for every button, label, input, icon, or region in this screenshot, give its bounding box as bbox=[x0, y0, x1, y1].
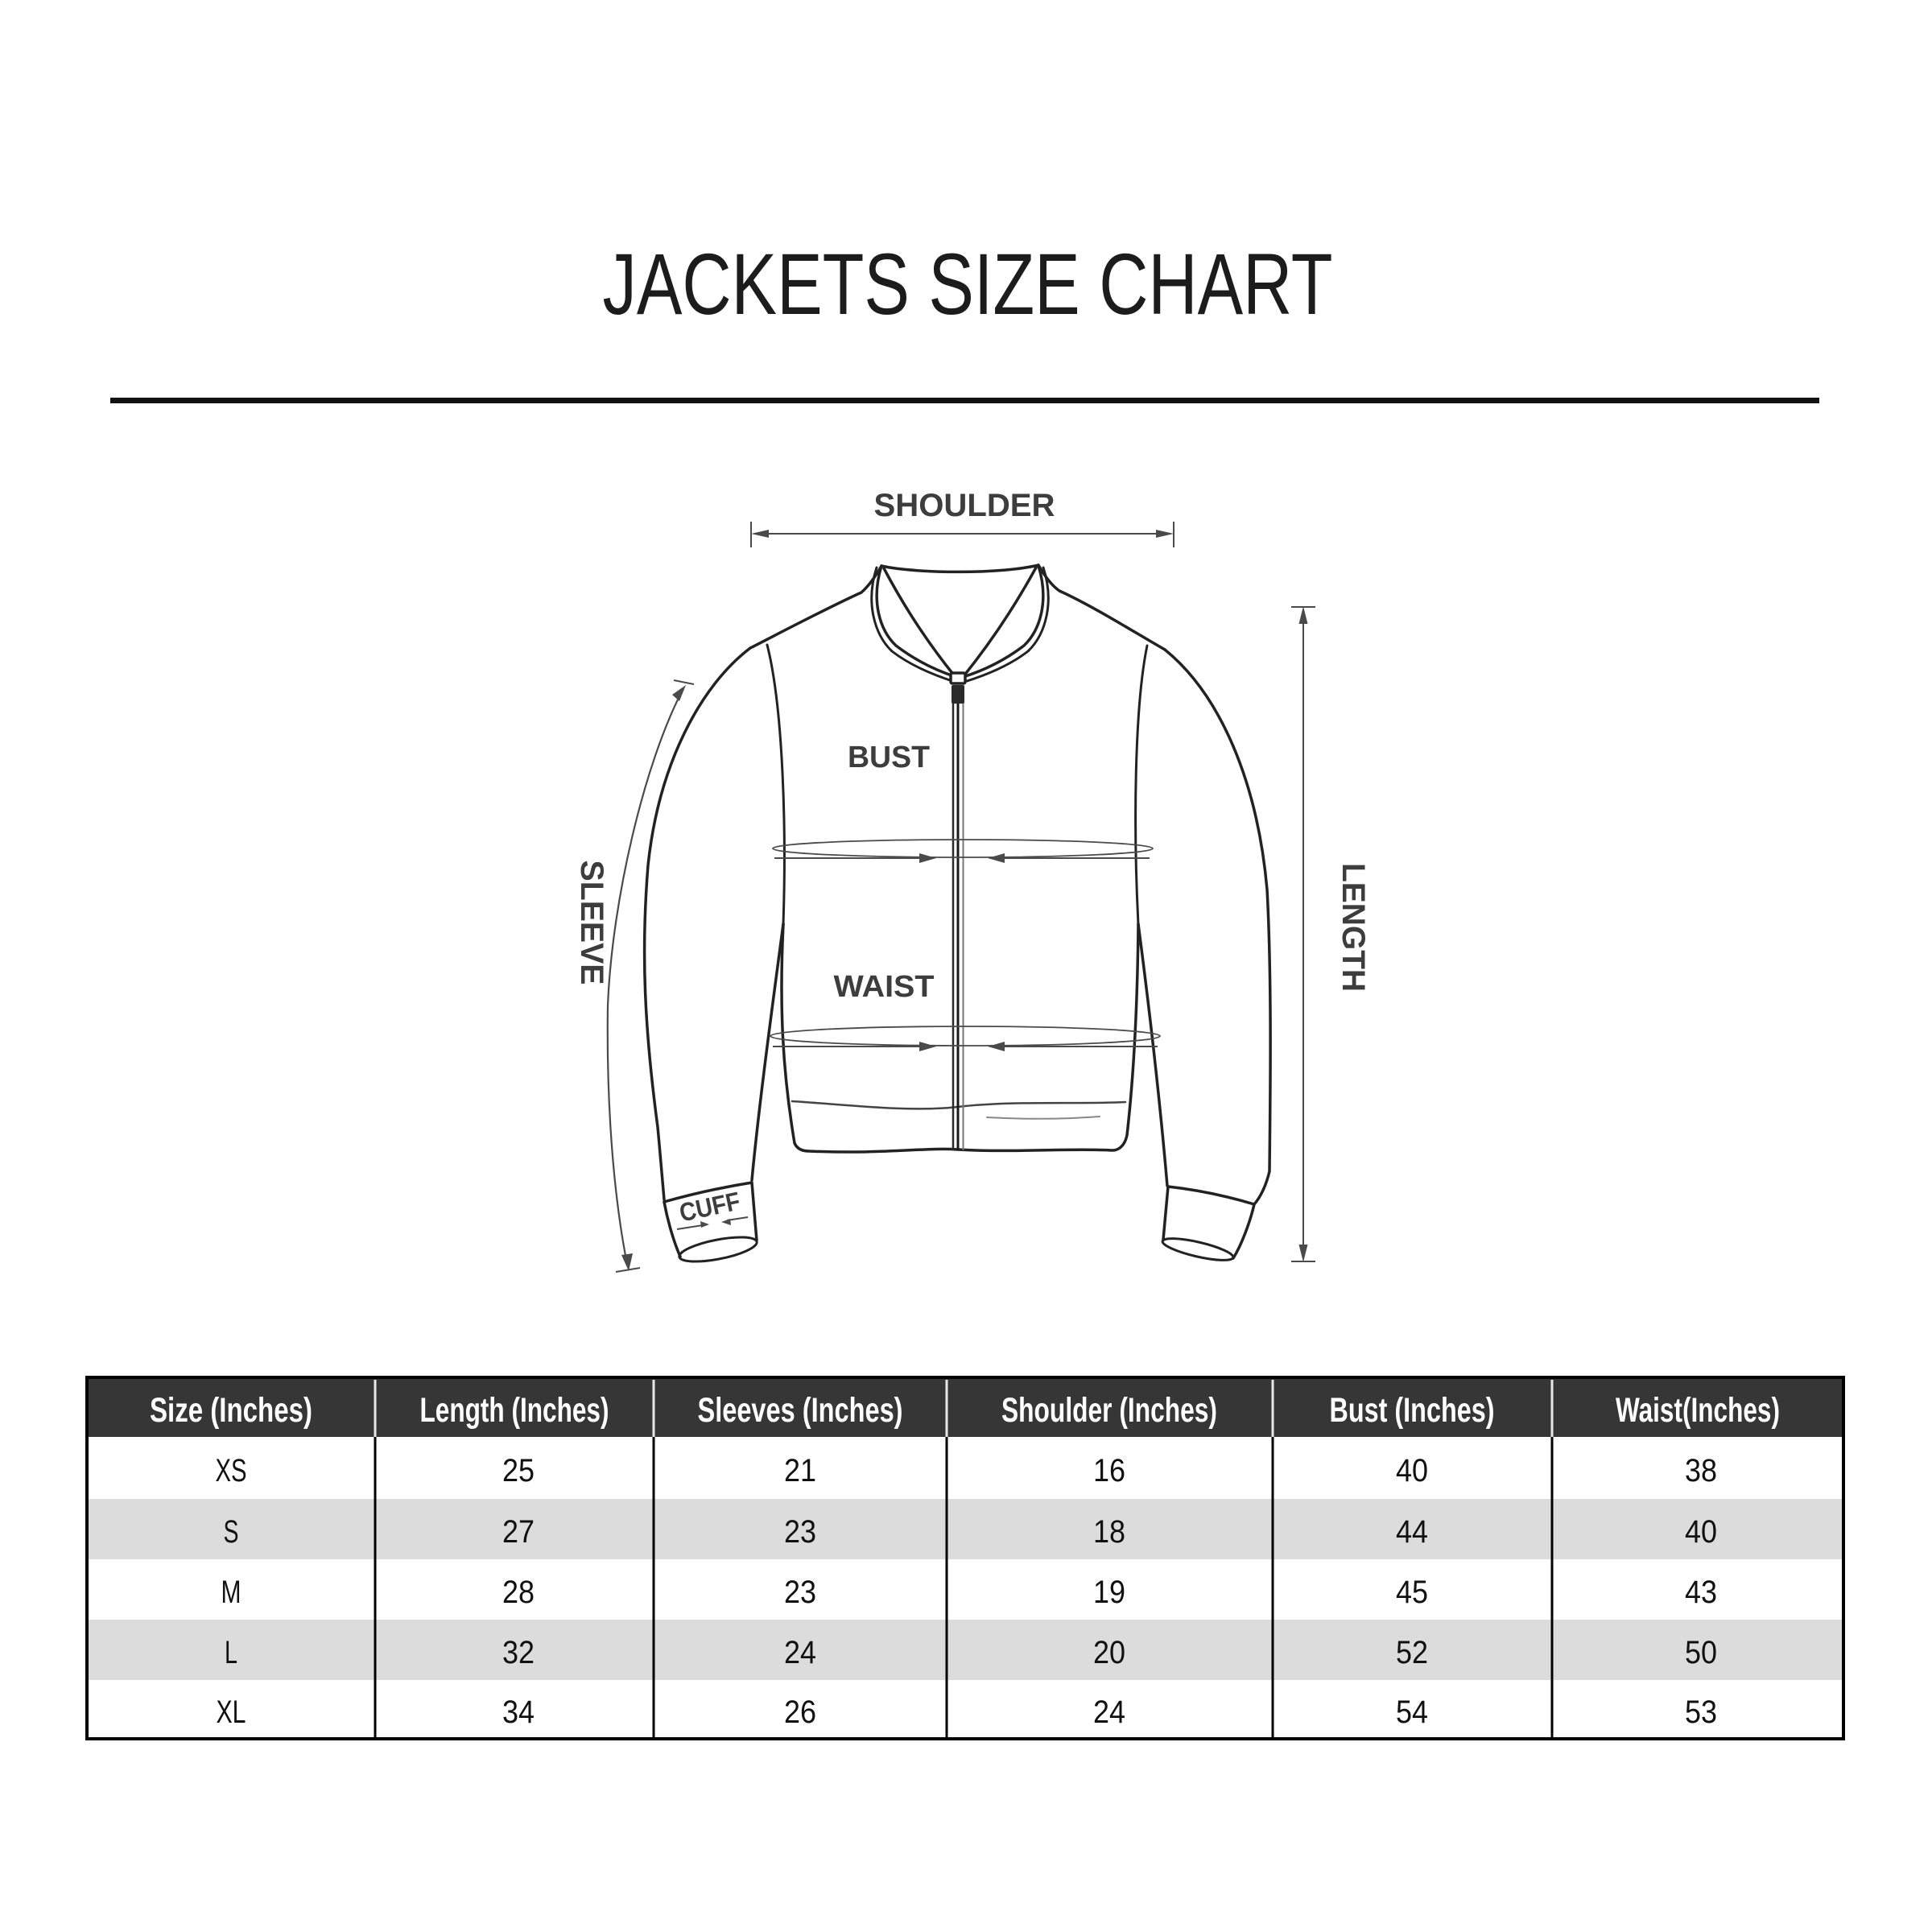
svg-text:38: 38 bbox=[1685, 1453, 1717, 1488]
svg-text:24: 24 bbox=[784, 1635, 816, 1670]
svg-text:20: 20 bbox=[1093, 1635, 1125, 1670]
svg-text:WAIST: WAIST bbox=[834, 970, 935, 1004]
svg-text:44: 44 bbox=[1396, 1514, 1428, 1550]
svg-text:24: 24 bbox=[1093, 1695, 1125, 1730]
svg-text:Bust (Inches): Bust (Inches) bbox=[1330, 1391, 1495, 1430]
svg-text:50: 50 bbox=[1685, 1635, 1717, 1670]
svg-text:16: 16 bbox=[1093, 1453, 1125, 1488]
svg-text:23: 23 bbox=[784, 1514, 816, 1550]
svg-text:L: L bbox=[225, 1635, 237, 1670]
svg-text:52: 52 bbox=[1396, 1635, 1428, 1670]
svg-text:54: 54 bbox=[1396, 1695, 1428, 1730]
svg-text:CUFF: CUFF bbox=[677, 1187, 743, 1228]
svg-text:32: 32 bbox=[502, 1635, 535, 1670]
svg-text:Shoulder (Inches): Shoulder (Inches) bbox=[1001, 1391, 1217, 1430]
svg-text:26: 26 bbox=[784, 1695, 816, 1730]
svg-text:Size (Inches): Size (Inches) bbox=[150, 1391, 312, 1430]
svg-text:BUST: BUST bbox=[848, 741, 930, 774]
svg-text:XS: XS bbox=[216, 1453, 247, 1488]
svg-text:23: 23 bbox=[784, 1575, 816, 1610]
svg-text:SHOULDER: SHOULDER bbox=[874, 488, 1055, 523]
svg-text:SLEEVE: SLEEVE bbox=[574, 861, 609, 985]
svg-text:Length (Inches): Length (Inches) bbox=[420, 1391, 609, 1430]
svg-text:45: 45 bbox=[1396, 1575, 1428, 1610]
svg-text:27: 27 bbox=[502, 1514, 535, 1550]
svg-text:M: M bbox=[221, 1575, 242, 1610]
svg-text:JACKETS SIZE CHART: JACKETS SIZE CHART bbox=[603, 235, 1333, 332]
svg-text:19: 19 bbox=[1093, 1575, 1125, 1610]
svg-text:53: 53 bbox=[1685, 1695, 1717, 1730]
svg-text:LENGTH: LENGTH bbox=[1335, 863, 1371, 992]
svg-text:Sleeves (Inches): Sleeves (Inches) bbox=[698, 1391, 903, 1430]
svg-text:XL: XL bbox=[217, 1695, 246, 1730]
svg-text:40: 40 bbox=[1396, 1453, 1428, 1488]
svg-text:28: 28 bbox=[502, 1575, 535, 1610]
svg-text:43: 43 bbox=[1685, 1575, 1717, 1610]
svg-text:25: 25 bbox=[502, 1453, 535, 1488]
svg-text:Waist(Inches): Waist(Inches) bbox=[1616, 1391, 1780, 1430]
svg-text:S: S bbox=[224, 1514, 239, 1550]
svg-text:40: 40 bbox=[1685, 1514, 1717, 1550]
svg-text:34: 34 bbox=[502, 1695, 535, 1730]
svg-text:18: 18 bbox=[1093, 1514, 1125, 1550]
svg-text:21: 21 bbox=[784, 1453, 816, 1488]
